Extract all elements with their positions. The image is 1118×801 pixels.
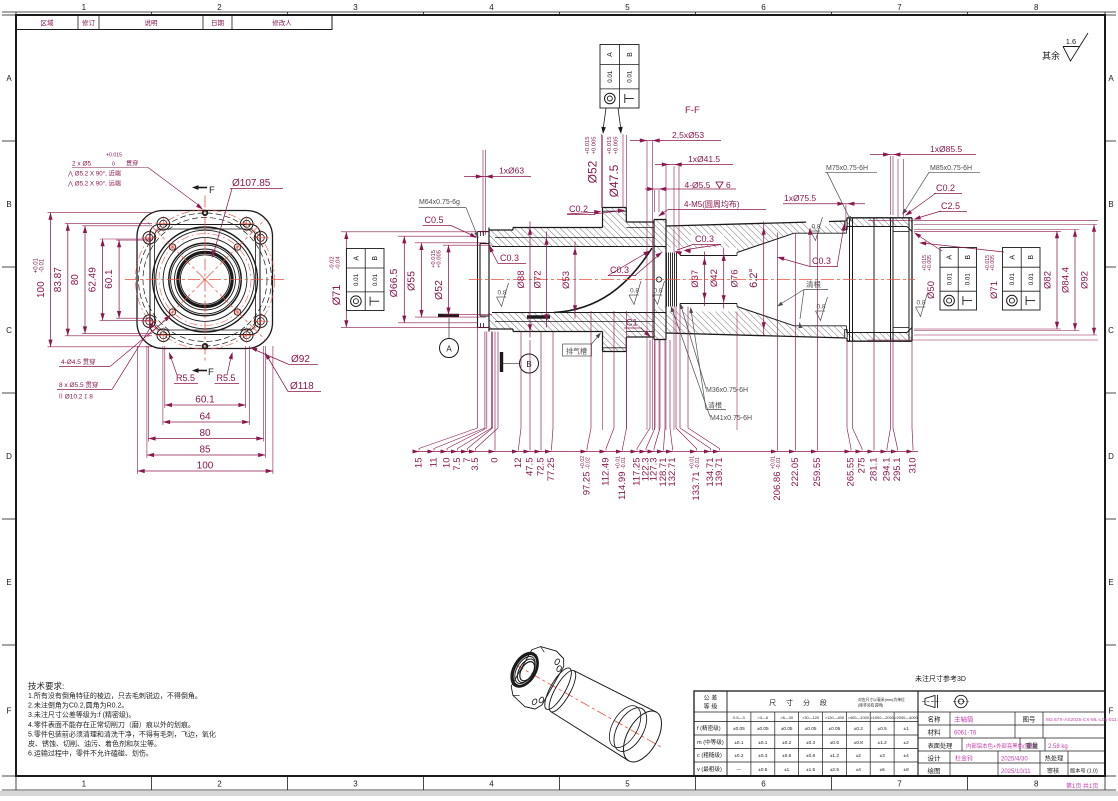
svg-text:±0.5: ±0.5: [758, 767, 767, 772]
svg-text:±1.2: ±1.2: [878, 740, 887, 745]
svg-text:公 差: 公 差: [704, 694, 718, 702]
svg-text:0.01: 0.01: [353, 273, 360, 286]
svg-text:5: 5: [625, 780, 630, 789]
svg-text:+0.005: +0.005: [927, 255, 933, 271]
svg-text:⋀ Ø5.2 X 90°, 近端: ⋀ Ø5.2 X 90°, 近端: [67, 170, 121, 178]
svg-text:清根: 清根: [806, 279, 821, 289]
svg-text:重量: 重量: [1026, 742, 1038, 750]
svg-text:D: D: [6, 452, 12, 461]
svg-text:295.1: 295.1: [892, 458, 903, 482]
svg-text:F-F: F-F: [685, 105, 700, 116]
svg-text:281.1: 281.1: [869, 458, 880, 482]
svg-text:Ø42: Ø42: [709, 269, 720, 287]
svg-text:±1.2: ±1.2: [830, 753, 839, 758]
svg-text:7: 7: [897, 3, 902, 12]
svg-text:R5.5: R5.5: [176, 373, 195, 383]
svg-text:1.6: 1.6: [1066, 37, 1076, 46]
svg-text:15: 15: [414, 458, 425, 469]
svg-text:2,5xØ53: 2,5xØ53: [672, 130, 704, 140]
svg-text:2025/10/11: 2025/10/11: [1001, 769, 1031, 775]
svg-text:修改人: 修改人: [272, 18, 292, 27]
svg-text:M2.67X-AS2025-CX-ML-L01-011: M2.67X-AS2025-CX-ML-L01-011: [1046, 717, 1117, 723]
svg-text:C0.3: C0.3: [695, 234, 714, 244]
svg-text:B: B: [1028, 255, 1035, 260]
svg-text:7: 7: [897, 780, 902, 789]
svg-text:A: A: [353, 256, 360, 261]
svg-text:6: 6: [726, 180, 731, 190]
svg-text:±0.05: ±0.05: [805, 726, 817, 731]
svg-text:-0.01: -0.01: [621, 457, 627, 469]
svg-text:2 x Ø5: 2 x Ø5: [72, 161, 92, 168]
svg-text:139.71: 139.71: [714, 458, 725, 487]
svg-text:0.5—3: 0.5—3: [733, 715, 744, 720]
svg-text:±1: ±1: [784, 767, 790, 772]
svg-text:Ø55: Ø55: [406, 271, 418, 291]
svg-text:±0.8: ±0.8: [806, 753, 815, 758]
svg-text:0.01: 0.01: [1028, 273, 1035, 286]
svg-text:修订: 修订: [82, 18, 96, 27]
svg-text:名称: 名称: [928, 715, 942, 724]
svg-text:日期: 日期: [211, 19, 225, 27]
svg-text:-0.01: -0.01: [776, 457, 782, 469]
svg-text:1.所有没有倒角特征的棱边，只去毛刺锐边，不得倒角。: 1.所有没有倒角特征的棱边，只去毛刺锐边，不得倒角。: [28, 691, 202, 700]
svg-text:3.5: 3.5: [470, 458, 481, 471]
svg-text:12: 12: [513, 458, 524, 469]
svg-text:(除非另有说明): (除非另有说明): [858, 703, 884, 708]
svg-text:±0.8: ±0.8: [854, 740, 863, 745]
svg-text:±1: ±1: [904, 726, 910, 731]
svg-text:±0.05: ±0.05: [829, 726, 841, 731]
svg-text:1xØ41.5: 1xØ41.5: [688, 154, 720, 164]
svg-text:设计: 设计: [928, 754, 942, 763]
svg-text:Ø53: Ø53: [561, 271, 572, 289]
svg-text:D: D: [1108, 452, 1114, 461]
svg-text:-0.01: -0.01: [40, 258, 46, 272]
svg-text:Ø71: Ø71: [989, 281, 1000, 299]
svg-text:杜金铃: 杜金铃: [955, 755, 973, 763]
svg-text:±0.5: ±0.5: [782, 753, 791, 758]
svg-text:>2000—4000: >2000—4000: [894, 715, 918, 720]
svg-text:+0.005: +0.005: [591, 137, 597, 155]
svg-text:Ø50: Ø50: [926, 281, 937, 299]
svg-text:Ø71: Ø71: [331, 285, 343, 306]
svg-text:10: 10: [442, 458, 453, 469]
svg-text:B: B: [526, 360, 531, 369]
svg-text:F: F: [209, 185, 215, 196]
svg-text:清根: 清根: [708, 401, 722, 410]
svg-text:±0.3: ±0.3: [758, 753, 767, 758]
svg-text:±0.5: ±0.5: [878, 726, 887, 731]
svg-text:>1000—2000: >1000—2000: [870, 715, 894, 720]
svg-text:222.05: 222.05: [790, 458, 801, 487]
svg-text:A: A: [947, 255, 954, 260]
svg-text:3: 3: [353, 780, 358, 789]
svg-text:C2.5: C2.5: [941, 201, 960, 211]
svg-text:B: B: [6, 200, 11, 209]
svg-text:2.未注倒角为C0.2,圆角为R0.2。: 2.未注倒角为C0.2,圆角为R0.2。: [28, 701, 128, 710]
svg-text:±2: ±2: [856, 753, 862, 758]
svg-text:8: 8: [1034, 3, 1039, 12]
svg-text:85: 85: [199, 445, 211, 456]
svg-text:v (最粗级): v (最粗级): [697, 765, 722, 773]
svg-text:±3: ±3: [880, 753, 886, 758]
svg-text:M75x0.75-6H: M75x0.75-6H: [826, 165, 868, 172]
svg-text:绘图: 绘图: [928, 766, 941, 775]
svg-text:3: 3: [353, 3, 358, 12]
svg-text:Ø47.5: Ø47.5: [607, 164, 621, 197]
svg-text:275: 275: [857, 458, 868, 474]
svg-text:±1.5: ±1.5: [806, 767, 815, 772]
svg-text:4-Ø5.5: 4-Ø5.5: [685, 180, 711, 190]
svg-text:60.1: 60.1: [195, 395, 215, 406]
svg-text:6.2°: 6.2°: [748, 268, 760, 288]
svg-text:2025/4/30: 2025/4/30: [1001, 757, 1028, 763]
svg-text:>3—6: >3—6: [758, 715, 769, 720]
svg-text:8 x Ø5.5 贯穿: 8 x Ø5.5 贯穿: [59, 380, 98, 389]
svg-text:C: C: [6, 326, 12, 335]
svg-text:Ø52: Ø52: [433, 280, 445, 300]
svg-text:0: 0: [112, 162, 115, 168]
svg-text:A: A: [446, 345, 452, 354]
svg-text:Ø72: Ø72: [533, 271, 544, 289]
svg-text:F: F: [1109, 707, 1114, 716]
svg-text:R5.5: R5.5: [217, 373, 236, 383]
svg-text:>6—30: >6—30: [780, 715, 793, 720]
svg-text:0: 0: [490, 458, 501, 463]
svg-text:1: 1: [82, 3, 87, 12]
svg-text:主轴筒: 主轴筒: [954, 715, 974, 724]
svg-text:5: 5: [625, 3, 630, 12]
svg-text:技术要求:: 技术要求:: [28, 681, 64, 691]
svg-text:±0.2: ±0.2: [734, 753, 743, 758]
svg-text:-0.04: -0.04: [335, 256, 341, 270]
svg-text:Ø118: Ø118: [290, 381, 314, 392]
svg-text:±0.2: ±0.2: [854, 726, 863, 731]
svg-text:C0.2: C0.2: [569, 204, 588, 214]
svg-text:f (精密级): f (精密级): [697, 724, 721, 732]
svg-text:3.未注尺寸公差等级为:f (精密级)。: 3.未注尺寸公差等级为:f (精密级)。: [28, 710, 135, 719]
svg-text:区域: 区域: [41, 18, 55, 27]
svg-text:C0.2: C0.2: [936, 183, 955, 193]
svg-text:Ø76: Ø76: [730, 270, 741, 288]
svg-text:C0.3: C0.3: [812, 256, 831, 266]
svg-text:>120—400: >120—400: [825, 715, 845, 720]
svg-text:±0.05: ±0.05: [781, 726, 793, 731]
svg-text:2.58 kg: 2.58 kg: [1048, 744, 1068, 750]
svg-text:排气槽: 排气槽: [566, 347, 587, 356]
svg-text:133.71: 133.71: [691, 472, 702, 501]
svg-text:A: A: [6, 74, 12, 83]
svg-text:+0.015: +0.015: [585, 137, 591, 155]
svg-text:±2: ±2: [904, 740, 910, 745]
svg-text:未注尺寸参考3D: 未注尺寸参考3D: [915, 674, 966, 683]
svg-text:B: B: [1108, 200, 1113, 209]
svg-text:C0.5: C0.5: [425, 215, 444, 225]
svg-text:表面处理: 表面处理: [928, 742, 953, 750]
svg-text:6: 6: [761, 780, 766, 789]
svg-text:热处理: 热处理: [1045, 755, 1064, 763]
svg-text:C0.3: C0.3: [500, 253, 519, 263]
svg-text:0.01: 0.01: [1009, 273, 1016, 286]
svg-text:112.49: 112.49: [601, 458, 612, 486]
svg-text:265.55: 265.55: [846, 458, 857, 487]
svg-text:±0.5: ±0.5: [830, 740, 839, 745]
svg-text:2: 2: [217, 3, 222, 12]
svg-text:Ø92: Ø92: [291, 354, 310, 365]
svg-text:97.25: 97.25: [582, 472, 593, 496]
svg-text:+0.005: +0.005: [437, 250, 443, 268]
svg-text:Ø52: Ø52: [586, 160, 600, 183]
svg-text:M36x0.75-6H: M36x0.75-6H: [706, 387, 748, 394]
svg-text:2: 2: [217, 780, 222, 789]
svg-text:4: 4: [489, 780, 494, 789]
svg-text:图号: 图号: [1023, 716, 1037, 724]
svg-text:C: C: [1108, 326, 1114, 335]
svg-text:259.55: 259.55: [812, 458, 823, 487]
svg-text:⋀ Ø5.2 X 90°, 远端: ⋀ Ø5.2 X 90°, 远端: [67, 180, 121, 188]
svg-text:206.86: 206.86: [772, 472, 783, 501]
svg-text:A: A: [1108, 74, 1114, 83]
svg-text:±0.3: ±0.3: [806, 740, 815, 745]
svg-text:±4: ±4: [856, 767, 862, 772]
svg-text:等 级: 等 级: [704, 703, 718, 711]
svg-text:±8: ±8: [904, 767, 910, 772]
svg-text:>400—1000: >400—1000: [848, 715, 870, 720]
svg-text:80: 80: [199, 428, 211, 439]
svg-text:±6: ±6: [880, 767, 886, 772]
svg-text:294.1: 294.1: [882, 458, 893, 482]
svg-text:M85x0.75-6H: M85x0.75-6H: [930, 165, 972, 172]
svg-text:E: E: [6, 578, 11, 587]
svg-text:M64x0.75-6g: M64x0.75-6g: [419, 199, 460, 206]
svg-text:说明: 说明: [145, 18, 159, 27]
svg-text:1xØ75.5: 1xØ75.5: [784, 193, 816, 203]
svg-text:Ø88: Ø88: [516, 271, 527, 289]
svg-text:A: A: [607, 52, 614, 57]
svg-text:62.49: 62.49: [88, 267, 99, 292]
svg-text:1xØ85.5: 1xØ85.5: [930, 144, 962, 154]
svg-text:0.01: 0.01: [965, 273, 972, 286]
svg-text:—: —: [737, 767, 742, 772]
svg-text:±0.05: ±0.05: [733, 726, 745, 731]
svg-text:0.01: 0.01: [946, 273, 953, 286]
svg-text:47.5: 47.5: [525, 458, 536, 477]
svg-text:4-Ø4.5 贯穿: 4-Ø4.5 贯穿: [61, 357, 96, 366]
svg-text:尺 寸 分 段: 尺 寸 分 段: [769, 698, 831, 707]
svg-text:Ø92: Ø92: [1080, 271, 1091, 289]
svg-text:±0.1: ±0.1: [734, 740, 743, 745]
svg-text:A: A: [1009, 255, 1016, 260]
svg-text:其余: 其余: [1042, 50, 1060, 61]
svg-text:c (粗糙级): c (粗糙级): [697, 751, 722, 759]
svg-text:材料: 材料: [928, 728, 942, 737]
svg-text:B: B: [627, 52, 634, 57]
svg-text:4: 4: [489, 3, 494, 12]
svg-text:60.1: 60.1: [104, 269, 115, 289]
svg-text:+0.015: +0.015: [607, 137, 613, 155]
svg-text:B: B: [965, 255, 972, 260]
svg-text:310: 310: [908, 458, 919, 474]
svg-text:4-M5(圆周均布): 4-M5(圆周均布): [684, 199, 740, 209]
svg-text:1: 1: [82, 780, 87, 789]
svg-text:审核: 审核: [1047, 767, 1059, 775]
svg-text:⌷ Ø10.2 ↧ 8: ⌷ Ø10.2 ↧ 8: [59, 394, 93, 401]
svg-text:114.99: 114.99: [617, 472, 628, 500]
svg-text:77.25: 77.25: [546, 458, 557, 482]
svg-text:m (中等级): m (中等级): [697, 738, 724, 746]
svg-text:B: B: [372, 256, 379, 261]
svg-text:C1: C1: [626, 318, 638, 328]
svg-text:+0.015: +0.015: [106, 153, 122, 159]
svg-text:M41x0.75-6H: M41x0.75-6H: [710, 415, 752, 422]
svg-text:-0.01: -0.01: [695, 457, 701, 469]
svg-text:100: 100: [197, 461, 214, 472]
svg-text:8: 8: [1034, 780, 1039, 789]
svg-text:Ø84.4: Ø84.4: [1061, 267, 1072, 293]
svg-text:6: 6: [761, 3, 766, 12]
svg-text:80: 80: [70, 274, 81, 286]
svg-text:+0.005: +0.005: [990, 255, 996, 271]
svg-text:F: F: [7, 707, 12, 716]
svg-text:1xØ63: 1xØ63: [499, 166, 524, 176]
svg-text:>30—120: >30—120: [802, 715, 820, 720]
svg-text:4.零件表面不能存在正常切削刀（磨）痕以外的划痕。: 4.零件表面不能存在正常切削刀（磨）痕以外的划痕。: [28, 720, 195, 729]
svg-text:-0.02: -0.02: [586, 457, 592, 469]
svg-text:F: F: [208, 367, 214, 378]
svg-text:对应尺寸以毫米(mm)为单位: 对应尺寸以毫米(mm)为单位: [858, 697, 905, 702]
svg-text:5.零件包装前必须清理和清洗干净，不得有毛刺，飞边，氧化: 5.零件包装前必须清理和清洗干净，不得有毛刺，飞边，氧化: [28, 729, 216, 738]
svg-text:±0.1: ±0.1: [758, 740, 767, 745]
svg-text:64: 64: [199, 412, 211, 423]
svg-text:+0.005: +0.005: [613, 137, 619, 155]
svg-text:72.5: 72.5: [536, 458, 547, 477]
svg-text:132.71: 132.71: [667, 458, 678, 487]
svg-text:6.运输过程中，零件不允许磕碰、划伤。: 6.运输过程中，零件不允许磕碰、划伤。: [28, 749, 153, 758]
svg-text:版本号 (1.0): 版本号 (1.0): [1070, 767, 1098, 775]
svg-text:0.01: 0.01: [607, 70, 614, 83]
svg-text:±0.05: ±0.05: [757, 726, 769, 731]
svg-text:±2.5: ±2.5: [830, 767, 839, 772]
svg-text:6061-T6: 6061-T6: [954, 731, 977, 737]
svg-text:100: 100: [36, 281, 47, 298]
svg-text:Ø37: Ø37: [690, 270, 701, 288]
svg-text:皮、锈蚀、切削、油污、着色剂和灰尘等。: 皮、锈蚀、切削、油污、着色剂和灰尘等。: [28, 739, 161, 748]
svg-text:E: E: [1108, 578, 1113, 587]
svg-text:Ø66.5: Ø66.5: [388, 269, 400, 298]
svg-text:0.01: 0.01: [627, 70, 634, 83]
svg-text:Ø107.85: Ø107.85: [232, 178, 271, 189]
svg-text:第1页 共1页: 第1页 共1页: [1066, 782, 1098, 790]
svg-text:±0.2: ±0.2: [782, 740, 791, 745]
svg-text:83.87: 83.87: [53, 267, 64, 292]
svg-text:11: 11: [429, 458, 440, 468]
svg-text:±4: ±4: [904, 753, 910, 758]
svg-text:C0.3: C0.3: [610, 265, 629, 275]
svg-text:0.01: 0.01: [372, 273, 379, 286]
svg-text:Ø82: Ø82: [1043, 271, 1054, 289]
svg-text:贯穿: 贯穿: [126, 160, 138, 168]
